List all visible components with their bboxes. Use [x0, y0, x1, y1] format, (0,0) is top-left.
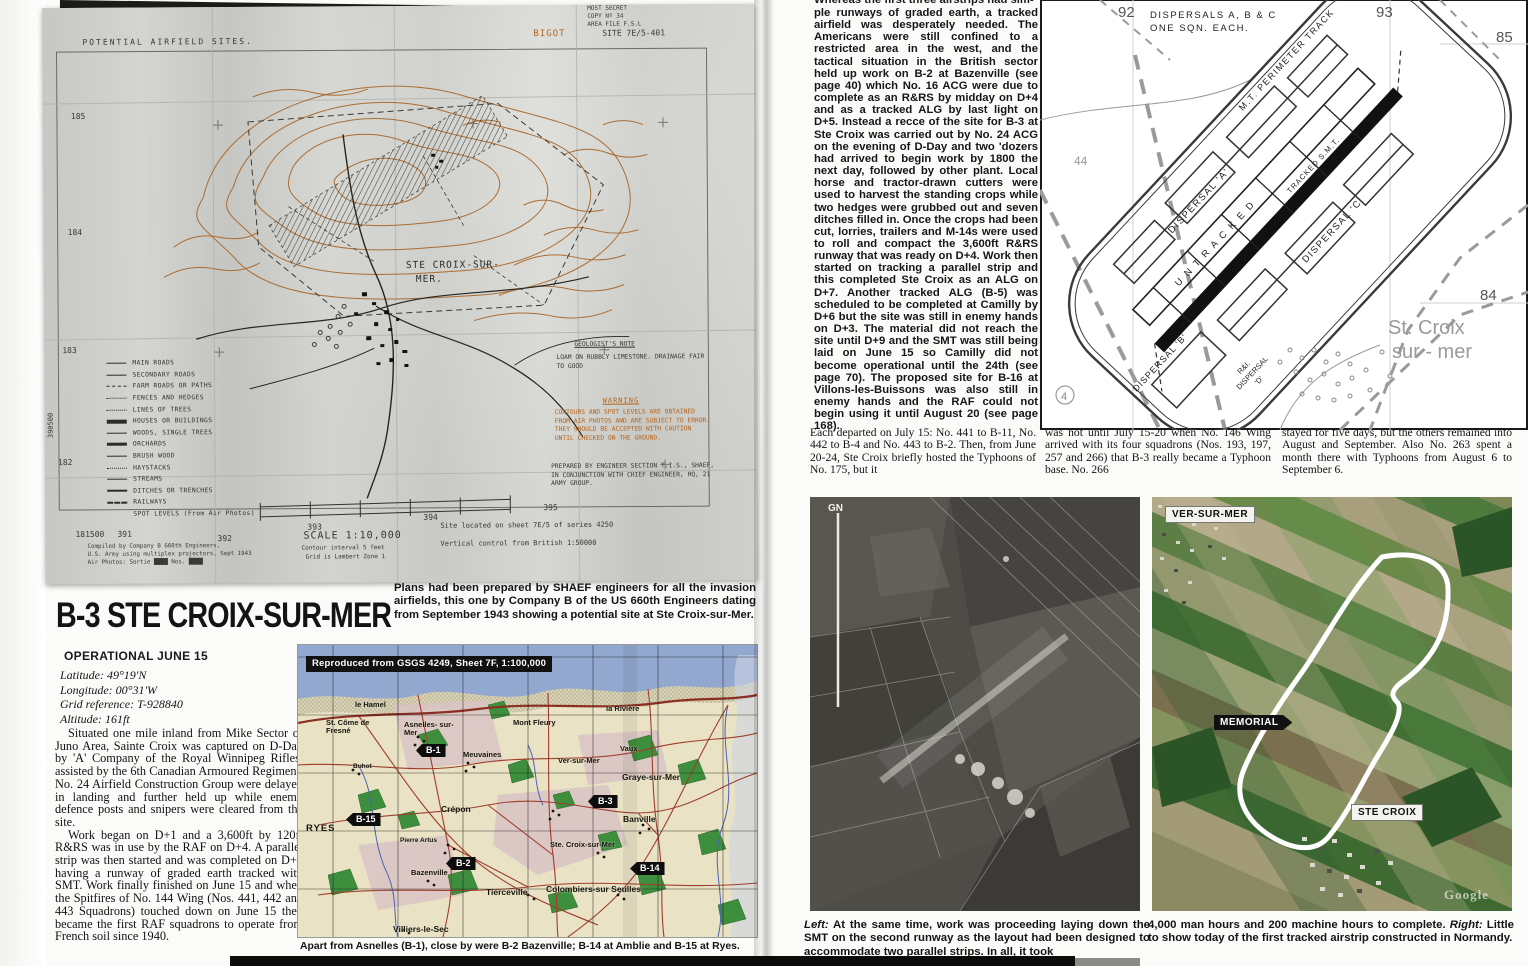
plan-map-caption: Plans had been prepared by SHAEF enginee… — [394, 582, 756, 622]
legend-label: WOODS, SINGLE TREES — [133, 429, 213, 436]
town-label: Villiers-le-Sec — [393, 925, 449, 933]
legend-label: BRUSH WOOD — [133, 452, 175, 459]
geologist-note-title: GEOLOGIST'S NOTE — [574, 341, 635, 348]
article-paragraph-2: Work began on D+1 and a 3,600ft by 120ft… — [55, 829, 303, 943]
article-title: B-3 STE CROIX-SUR-MER — [56, 596, 391, 636]
left-page-margin — [0, 0, 46, 966]
site-reference: SITE 7E/5-401 — [602, 28, 665, 37]
town-label: Meuvaines — [463, 751, 501, 759]
town-label: Buhot — [353, 763, 372, 771]
num-44: 44 — [1074, 154, 1088, 168]
legend-item: SPOT LEVELS (From Air Photos) — [107, 508, 255, 520]
legend-symbol — [107, 467, 127, 468]
compiled-note3: Air Photos: Sortie ████ Nos. ████ — [88, 559, 203, 566]
article-paragraph-1: Situated one mile inland from Mike Secto… — [55, 727, 303, 829]
dispersal-diagram-drawing: DISPERSAL 'A' U N T R A C K E D TRACKED … — [1040, 0, 1528, 430]
column-b: was not until July 15-20 when No. 146 Wi… — [1045, 427, 1271, 476]
memorial-label: MEMORIAL — [1214, 715, 1292, 730]
caption-right-photo: 4,000 man hours and 200 machine hours to… — [1148, 919, 1514, 946]
legend-item: FENCES AND HEDGES — [107, 392, 255, 404]
town-label: Asnelles- sur-Mer — [404, 721, 454, 737]
gsgs-source-label: Reproduced from GSGS 4249, Sheet 7F, 1:1… — [306, 656, 552, 672]
grid-number: 183 — [62, 346, 77, 355]
legend-item: LINES OF TREES — [107, 403, 255, 415]
scale-note1: Contour interval 5 feet — [302, 544, 385, 552]
north-arrow-label: GN — [828, 503, 843, 514]
google-watermark: Google — [1444, 887, 1489, 903]
town-label: RYES — [306, 825, 336, 833]
gsgs-map-drawing — [298, 645, 757, 937]
legend-label: FENCES AND HEDGES — [133, 394, 204, 401]
compiled-note2: U.S. Army using multiplex projectors, Se… — [88, 551, 252, 558]
town-label: la Rivière — [606, 705, 639, 713]
legend-label: SPOT LEVELS (From Air Photos) — [133, 510, 255, 518]
legend-label: ORCHARDS — [133, 441, 167, 448]
diagram-town-line2: sur - mer — [1392, 341, 1472, 363]
legend-symbol — [107, 502, 127, 504]
town-label: le Hamel — [355, 701, 386, 709]
book-spine — [754, 0, 774, 966]
map-place-label-line1: STE CROIX-SUR- — [406, 259, 500, 271]
legend-item: ORCHARDS — [107, 438, 255, 450]
bottom-black-strip — [230, 956, 1075, 966]
dispersals-note-line2: ONE SQN. EACH. — [1150, 23, 1249, 34]
stat-latitude: Latitude: 49°19'N — [60, 668, 183, 683]
legend-item: SECONDARY ROADS — [106, 368, 254, 380]
town-label: Bazenville — [411, 869, 448, 877]
town-label: Mont Fleury — [513, 719, 556, 727]
grid-number: 392 — [217, 534, 232, 543]
prepared-by-note: PREPARED BY ENGINEER SECTION T.I.S., SHA… — [551, 462, 715, 489]
legend-label: LINES OF TREES — [133, 406, 192, 413]
legend-label: MAIN ROADS — [132, 360, 174, 367]
sheet-note2: Vertical control from British 1:50000 — [441, 539, 597, 548]
town-label: St. Côme de Fresné — [326, 719, 372, 735]
legend-item: BRUSH WOOD — [107, 450, 255, 462]
legend-label: HAYSTACKS — [133, 464, 171, 471]
grid-number: 391 — [117, 530, 132, 539]
survey-map-title: POTENTIAL AIRFIELD SITES. — [82, 37, 252, 47]
num-4: 4 — [1061, 391, 1067, 403]
town-label: Crépon — [441, 805, 471, 813]
legend-item: DITCHES OR TRENCHES — [107, 484, 255, 496]
town-label: Colombiers-sur Seulles — [546, 885, 641, 893]
legend-label: DITCHES OR TRENCHES — [133, 487, 213, 494]
ste-croix-label: STE CROIX — [1352, 805, 1422, 820]
sheet-note1: Site located on sheet 7E/5 of series 425… — [440, 521, 613, 530]
legend-symbol — [107, 433, 127, 434]
grid-number: 185 — [71, 112, 86, 121]
classification-block: MOST SECRET COPY Nº 34 AREA FILE F.S.L — [587, 5, 641, 29]
town-label: Ste. Croix-sur-Mer — [550, 841, 615, 849]
tree-symbols — [312, 304, 352, 348]
town-label: Banville — [623, 815, 656, 823]
legend-label: HOUSES OR BUILDINGS — [133, 417, 213, 424]
map-place-label-line2: MER. — [416, 274, 443, 285]
survey-map-photo: STE CROIX-SUR- MER. POTENTIAL AIRFIELD S… — [42, 4, 758, 584]
legend-item: HOUSES OR BUILDINGS — [107, 415, 255, 427]
grid-93: 93 — [1376, 4, 1393, 21]
airfield-marker-b3: B-3 — [588, 795, 618, 808]
grid-number: 394 — [423, 513, 438, 522]
caption-left-text: At the same time, work was proceeding la… — [804, 919, 1150, 958]
article-body: Situated one mile inland from Mike Secto… — [55, 727, 303, 943]
ver-sur-mer-label: VER-SUR-MER — [1166, 507, 1254, 522]
legend-symbol — [107, 386, 127, 387]
town-label: Graye-sur-Mer — [622, 773, 680, 781]
legend-item: FARM ROADS OR PATHS — [107, 380, 255, 392]
geologist-note-body: LOAM ON RUBBLY LIMESTONE. DRAINAGE FAIR … — [556, 352, 706, 371]
legend-symbol — [106, 375, 126, 376]
dispersal-diagram: DISPERSAL 'A' U N T R A C K E D TRACKED … — [1040, 0, 1528, 430]
column1-cut-line: Whereas the first three airstrips had si… — [814, 0, 1038, 6]
town-label: Tierceville — [486, 888, 527, 896]
dispersals-note-line1: DISPERSALS A, B & C — [1150, 10, 1277, 21]
legend-label: STREAMS — [133, 476, 162, 483]
legend-label: FARM ROADS OR PATHS — [133, 383, 213, 390]
column-a: Each departed on July 15: No. 441 to B-1… — [810, 427, 1036, 476]
map-legend: MAIN ROADS SECONDARY ROADS FARM ROADS OR… — [106, 357, 255, 520]
compiled-note1: Compiled by Company B 660th Engineers, — [88, 543, 221, 550]
warning-title: WARNING — [603, 397, 640, 405]
legend-item: WOODS, SINGLE TREES — [107, 426, 255, 438]
warning-body: CONTOURS AND SPOT LEVELS ARE OBTAINED FR… — [555, 408, 711, 443]
legend-symbol — [107, 419, 127, 423]
stat-longitude: Longitude: 00°31'W — [60, 683, 183, 698]
bottom-gray-strip — [1075, 958, 1140, 966]
grid-number-vertical: 390500 — [47, 413, 55, 438]
town-label: Vaux — [620, 745, 638, 753]
contour-lines — [163, 85, 648, 323]
caption-right-lead: Right: — [1450, 919, 1483, 931]
column1-body: ple runways of graded earth, a tracked a… — [814, 7, 1038, 432]
book-spread: STE CROIX-SUR- MER. POTENTIAL AIRFIELD S… — [0, 0, 1528, 966]
legend-label: RAILWAYS — [133, 499, 167, 506]
grid-92: 92 — [1118, 4, 1135, 21]
legend-symbol — [107, 398, 127, 399]
airfield-marker-b15: B-15 — [346, 813, 381, 826]
legend-item: STREAMS — [107, 473, 255, 485]
caption-left-lead: Left: — [804, 919, 829, 931]
legend-symbol — [106, 363, 126, 364]
scale-title: SCALE 1:10,000 — [303, 530, 401, 542]
grid-number: 182 — [58, 458, 73, 467]
gsgs-map-caption: Apart from Asnelles (B-1), close by were… — [300, 941, 770, 952]
operational-date: OPERATIONAL JUNE 15 — [64, 649, 208, 663]
caption-left-photo: Left: At the same time, work was proceed… — [804, 919, 1150, 959]
airfield-marker-b14: B-14 — [630, 862, 665, 875]
grid-number: 395 — [543, 503, 558, 512]
legend-symbol — [107, 479, 127, 480]
legend-label: SECONDARY ROADS — [132, 371, 195, 378]
diagram-town-line1: St. Croix — [1388, 317, 1465, 339]
bw-aerial-photo: GN — [810, 497, 1140, 911]
caption-right-text1: 4,000 man hours and 200 machine hours to… — [1148, 919, 1450, 931]
town-label: Pierre Artus — [400, 837, 437, 845]
satellite-photo-drawing — [1152, 497, 1512, 911]
legend-item: MAIN ROADS — [106, 357, 254, 369]
bw-photo-drawing: GN — [810, 497, 1140, 911]
legend-item: RAILWAYS — [107, 496, 255, 508]
bigot-stamp: BIGOT — [533, 29, 565, 39]
gsgs-colour-map: Reproduced from GSGS 4249, Sheet 7F, 1:1… — [298, 645, 757, 937]
airfield-marker-b2: B-2 — [446, 857, 476, 870]
legend-item: HAYSTACKS — [107, 461, 255, 473]
column-c: stayed for five days, but the others rem… — [1282, 427, 1512, 476]
legend-symbol — [107, 443, 127, 446]
scale-note2: Grid is Lambert Zone 1 — [306, 553, 386, 560]
satellite-photo: VER-SUR-MER MEMORIAL STE CROIX Google — [1152, 497, 1512, 911]
stat-grid-reference: Grid reference: T-928840 — [60, 697, 183, 712]
legend-symbol — [107, 409, 127, 410]
grid-85: 85 — [1496, 29, 1513, 46]
town-label: Ver-sur-Mer — [558, 757, 600, 765]
legend-symbol — [107, 490, 127, 492]
stat-altitude: Altitude: 161ft — [60, 712, 183, 727]
grid-number: 184 — [68, 228, 83, 237]
airfield-marker-b1: B-1 — [416, 744, 446, 757]
airfield-stats: Latitude: 49°19'N Longitude: 00°31'W Gri… — [60, 668, 183, 726]
legend-symbol — [107, 456, 127, 457]
grid-number: 181500 — [75, 530, 104, 539]
grid-84: 84 — [1480, 287, 1497, 304]
runway-hatched-strip — [269, 96, 507, 267]
